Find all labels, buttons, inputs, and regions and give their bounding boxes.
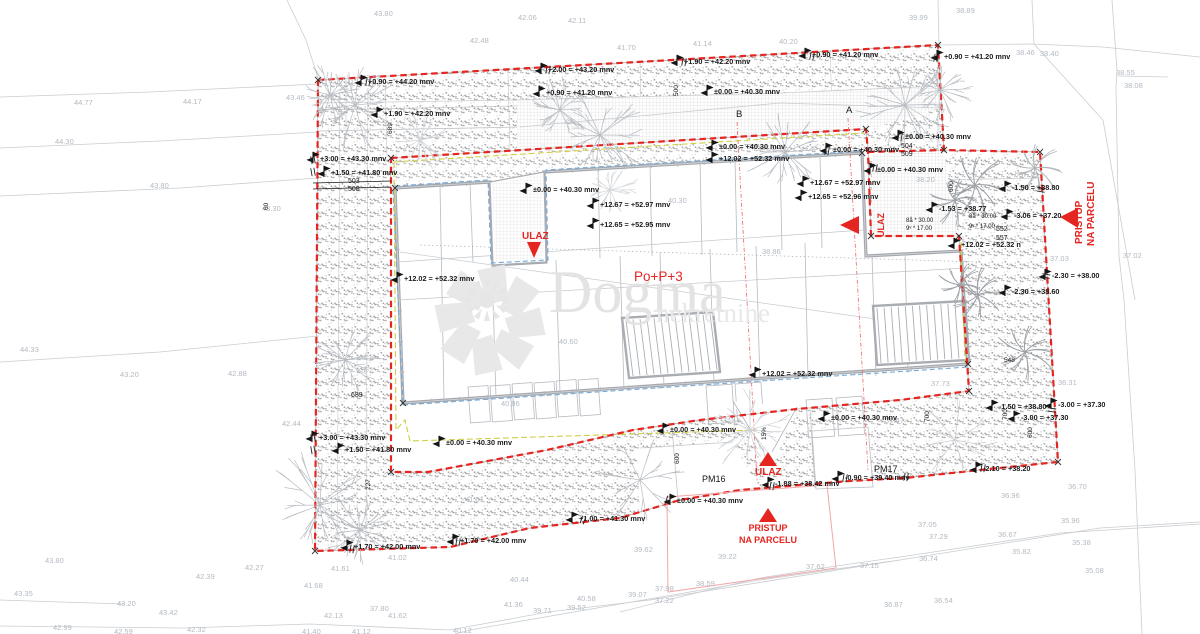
svg-text:44.33: 44.33 — [20, 345, 39, 354]
svg-text:+12.02 = +52.32 n: +12.02 = +52.32 n — [961, 240, 1021, 249]
svg-text:36.31: 36.31 — [1058, 378, 1077, 387]
svg-text:41.61: 41.61 — [331, 564, 350, 573]
svg-text:35.38: 35.38 — [1072, 538, 1091, 547]
svg-text:43.46: 43.46 — [286, 93, 305, 102]
svg-text:9ᵛ * 17.00: 9ᵛ * 17.00 — [969, 224, 996, 230]
svg-text:-3.06 = +37.20: -3.06 = +37.20 — [1014, 211, 1061, 220]
svg-text:43.35: 43.35 — [14, 589, 33, 598]
svg-text:40.44: 40.44 — [510, 575, 529, 584]
svg-text:-1.50 = +38.80: -1.50 = +38.80 — [1012, 183, 1059, 192]
svg-text:8å * 30.00: 8å * 30.00 — [969, 213, 997, 220]
svg-text:600: 600 — [1027, 427, 1034, 438]
svg-text:9ᵛ * 17.00: 9ᵛ * 17.00 — [906, 226, 933, 232]
svg-text:ULAZ: ULAZ — [755, 467, 782, 478]
svg-text:PM16: PM16 — [702, 474, 726, 484]
svg-text:-2.10 = +38.20: -2.10 = +38.20 — [983, 464, 1030, 473]
svg-text:42.88: 42.88 — [228, 369, 247, 378]
svg-text:±0.00 = +40.30 mnv: ±0.00 = +40.30 mnv — [719, 142, 786, 151]
svg-text:700: 700 — [924, 411, 931, 422]
svg-text:+1.50 = +41.80 mnv: +1.50 = +41.80 mnv — [331, 168, 398, 177]
svg-text:37.22: 37.22 — [655, 596, 674, 605]
svg-text:600: 600 — [674, 453, 681, 464]
svg-text:±0.00 = +40.30 mnv: ±0.00 = +40.30 mnv — [831, 413, 898, 422]
svg-text:-0.90 = +39.40 mnv: -0.90 = +39.40 mnv — [845, 473, 910, 482]
svg-text:39.99: 39.99 — [909, 13, 928, 22]
svg-text:504: 504 — [901, 143, 913, 150]
svg-text:+1.50 = +41.80 mnv: +1.50 = +41.80 mnv — [345, 445, 412, 454]
svg-text:42.11: 42.11 — [568, 16, 586, 25]
svg-text:+2.00 = +43.20 mnv: +2.00 = +43.20 mnv — [548, 65, 615, 74]
svg-text:42.32: 42.32 — [187, 625, 206, 634]
svg-text:39.71: 39.71 — [533, 606, 552, 615]
svg-text:500: 500 — [673, 85, 680, 96]
svg-text:41.14: 41.14 — [693, 39, 712, 48]
svg-text:39.22: 39.22 — [718, 552, 737, 561]
svg-text:38.86: 38.86 — [762, 247, 781, 256]
svg-text:40.12: 40.12 — [453, 626, 472, 634]
svg-text:39.07: 39.07 — [628, 590, 647, 599]
svg-text:548: 548 — [1004, 357, 1015, 364]
svg-text:41.70: 41.70 — [617, 43, 636, 52]
svg-text:+0.90 = +44.20 mnv: +0.90 = +44.20 mnv — [368, 77, 435, 86]
svg-text:36.54: 36.54 — [934, 596, 953, 605]
svg-text:41.12: 41.12 — [352, 627, 371, 634]
svg-text:PRISTUP: PRISTUP — [1074, 200, 1085, 244]
svg-text:8å * 30.00: 8å * 30.00 — [906, 217, 934, 224]
svg-text:+12.02 = +52.32 mnv: +12.02 = +52.32 mnv — [762, 369, 833, 378]
svg-text:689: 689 — [387, 123, 394, 134]
svg-text:557: 557 — [996, 235, 1008, 242]
svg-text:+1.90 = +42.20 mnv: +1.90 = +42.20 mnv — [684, 57, 751, 66]
svg-text:+12.67 = +52.97 mnv: +12.67 = +52.97 mnv — [810, 178, 881, 187]
svg-text:nekretnine: nekretnine — [656, 298, 770, 328]
svg-text:60: 60 — [263, 202, 270, 210]
svg-text:+3.00 = +43.30 mnv: +3.00 = +43.30 mnv — [320, 154, 387, 163]
svg-text:ULAZ: ULAZ — [876, 213, 886, 237]
svg-text:37.73: 37.73 — [931, 379, 950, 388]
svg-text:±0.00 = +40.30 mnv: ±0.00 = +40.30 mnv — [905, 132, 972, 141]
svg-text:39.52: 39.52 — [567, 603, 586, 612]
svg-text:43.42: 43.42 — [159, 608, 178, 617]
svg-text:+12.02 = +52.32 mnv: +12.02 = +52.32 mnv — [719, 154, 790, 163]
svg-text:-1.88 = +38.42 mnv: -1.88 = +38.42 mnv — [775, 479, 840, 488]
svg-text:700: 700 — [1002, 409, 1009, 420]
svg-text:37.80: 37.80 — [370, 604, 389, 613]
svg-text:38.20: 38.20 — [916, 175, 935, 184]
svg-text:38.08: 38.08 — [1124, 81, 1143, 90]
svg-text:35.96: 35.96 — [1061, 516, 1080, 525]
svg-text:37.03: 37.03 — [1050, 254, 1069, 263]
svg-text:38.89: 38.89 — [956, 6, 975, 15]
svg-text:42.44: 42.44 — [282, 419, 301, 428]
svg-text:±0.00 = +40.30 mnv: ±0.00 = +40.30 mnv — [677, 496, 744, 505]
svg-text:41.68: 41.68 — [304, 581, 323, 590]
svg-text:NA PARCELU: NA PARCELU — [739, 535, 797, 545]
svg-text:41.62: 41.62 — [388, 611, 407, 620]
svg-text:42.27: 42.27 — [245, 563, 264, 572]
svg-text:-3.00 = +37.30: -3.00 = +37.30 — [1021, 413, 1068, 422]
svg-text:+1.70 = +42.00 mnv: +1.70 = +42.00 mnv — [460, 536, 527, 545]
svg-text:±0.00 = +40.30 mnv: ±0.00 = +40.30 mnv — [533, 185, 600, 194]
svg-text:+12.67 = +52.97 mnv: +12.67 = +52.97 mnv — [600, 200, 671, 209]
svg-text:42.59: 42.59 — [114, 627, 133, 634]
svg-text:41.02: 41.02 — [388, 553, 407, 562]
svg-text:600: 600 — [948, 181, 955, 192]
svg-text:-2.30 = +38.00: -2.30 = +38.00 — [1052, 271, 1099, 280]
svg-text:+0.90 = +41.20 mnv: +0.90 = +41.20 mnv — [546, 88, 613, 97]
svg-text:PRISTUP: PRISTUP — [748, 523, 787, 533]
svg-text:36.74: 36.74 — [919, 554, 938, 563]
svg-text:+12.65 = +52.95 mnv: +12.65 = +52.95 mnv — [600, 220, 671, 229]
svg-text:-3.00 = +37.30: -3.00 = +37.30 — [1058, 400, 1105, 409]
svg-text:B: B — [736, 109, 742, 120]
svg-text:43.80: 43.80 — [150, 181, 169, 190]
svg-text:552: 552 — [996, 226, 1008, 233]
svg-text:42.48: 42.48 — [470, 36, 489, 45]
svg-text:-1.53 = +38.77: -1.53 = +38.77 — [939, 204, 986, 213]
svg-text:±0.00 = +40.30 mnv: ±0.00 = +40.30 mnv — [446, 438, 513, 447]
svg-text:+3.00 = +43.30 mnv: +3.00 = +43.30 mnv — [319, 433, 386, 442]
svg-text:43.20: 43.20 — [117, 599, 136, 608]
svg-text:38.59: 38.59 — [696, 579, 715, 588]
svg-text:37.62: 37.62 — [806, 562, 825, 571]
svg-text:+1.90 = +42.20 mnv: +1.90 = +42.20 mnv — [384, 109, 451, 118]
svg-text:+0.90 = +41.20 mnv: +0.90 = +41.20 mnv — [812, 50, 879, 59]
svg-text:+12.02 = +52.32 mnv: +12.02 = +52.32 mnv — [404, 274, 475, 283]
svg-text:44.17: 44.17 — [183, 97, 202, 106]
svg-text:±0.00 = +40.30 mnv: ±0.00 = +40.30 mnv — [670, 425, 737, 434]
svg-text:40.30: 40.30 — [668, 196, 687, 205]
svg-text:509: 509 — [901, 151, 913, 158]
svg-text:NA PARCELU: NA PARCELU — [1086, 182, 1097, 246]
svg-text:40.96: 40.96 — [501, 399, 520, 408]
svg-text:+12.65 = +52.96 mnv: +12.65 = +52.96 mnv — [808, 192, 879, 201]
svg-text:PM17: PM17 — [874, 464, 898, 474]
svg-text:36.70: 36.70 — [1068, 482, 1087, 491]
svg-text:40.60: 40.60 — [559, 337, 578, 346]
svg-text:36.67: 36.67 — [998, 530, 1017, 539]
svg-text:37.08: 37.08 — [655, 584, 674, 593]
svg-text:689: 689 — [351, 392, 363, 399]
svg-text:41.36: 41.36 — [504, 600, 523, 609]
svg-text:35.82: 35.82 — [1012, 547, 1031, 556]
svg-text:42.99: 42.99 — [53, 623, 72, 632]
svg-text:37.29: 37.29 — [929, 532, 948, 541]
svg-text:43.80: 43.80 — [45, 556, 64, 565]
svg-text:ULAZ: ULAZ — [522, 231, 549, 242]
svg-text:±0.00 = +40.30 mnv: ±0.00 = +40.30 mnv — [714, 87, 781, 96]
svg-text:-2.30 = +38.60: -2.30 = +38.60 — [1012, 287, 1059, 296]
svg-text:508: 508 — [348, 186, 360, 193]
svg-text:38.46: 38.46 — [1016, 48, 1035, 57]
svg-text:±0.00 = +40.30 mnv: ±0.00 = +40.30 mnv — [877, 165, 944, 174]
svg-text:227: 227 — [365, 479, 372, 490]
svg-text:±0.00 = +40.30 mnv: ±0.00 = +40.30 mnv — [833, 145, 900, 154]
svg-text:36.96: 36.96 — [1001, 491, 1020, 500]
svg-text:44.30: 44.30 — [55, 137, 74, 146]
svg-text:41.40: 41.40 — [302, 627, 321, 634]
svg-text:15%: 15% — [761, 427, 768, 440]
svg-text:37.75: 37.75 — [1019, 170, 1038, 179]
svg-text:+1.00 = +41.30 mnv: +1.00 = +41.30 mnv — [579, 514, 646, 523]
svg-text:Po+P+3: Po+P+3 — [634, 269, 683, 284]
svg-text:40.20: 40.20 — [779, 37, 798, 46]
svg-text:36.87: 36.87 — [884, 600, 903, 609]
svg-text:A: A — [846, 105, 853, 116]
svg-text:40.58: 40.58 — [577, 594, 596, 603]
svg-text:42.13: 42.13 — [324, 611, 343, 620]
svg-text:42.39: 42.39 — [196, 572, 215, 581]
svg-text:37.05: 37.05 — [918, 520, 937, 529]
svg-text:43.20: 43.20 — [120, 370, 139, 379]
svg-text:37.02: 37.02 — [1123, 251, 1142, 260]
svg-text:43.80: 43.80 — [374, 9, 393, 18]
svg-text:44.77: 44.77 — [74, 98, 93, 107]
svg-text:39.62: 39.62 — [634, 545, 653, 554]
svg-text:+1.70 = +42.00 mnv: +1.70 = +42.00 mnv — [354, 542, 421, 551]
svg-text:35.08: 35.08 — [1085, 566, 1104, 575]
svg-text:38.55: 38.55 — [1116, 68, 1135, 77]
svg-text:+0.90 = +41.20 mnv: +0.90 = +41.20 mnv — [944, 52, 1011, 61]
svg-text:41.01: 41.01 — [465, 495, 484, 504]
svg-text:37.15: 37.15 — [860, 561, 879, 570]
svg-text:38.40: 38.40 — [1040, 49, 1059, 58]
svg-text:42.06: 42.06 — [518, 13, 537, 22]
